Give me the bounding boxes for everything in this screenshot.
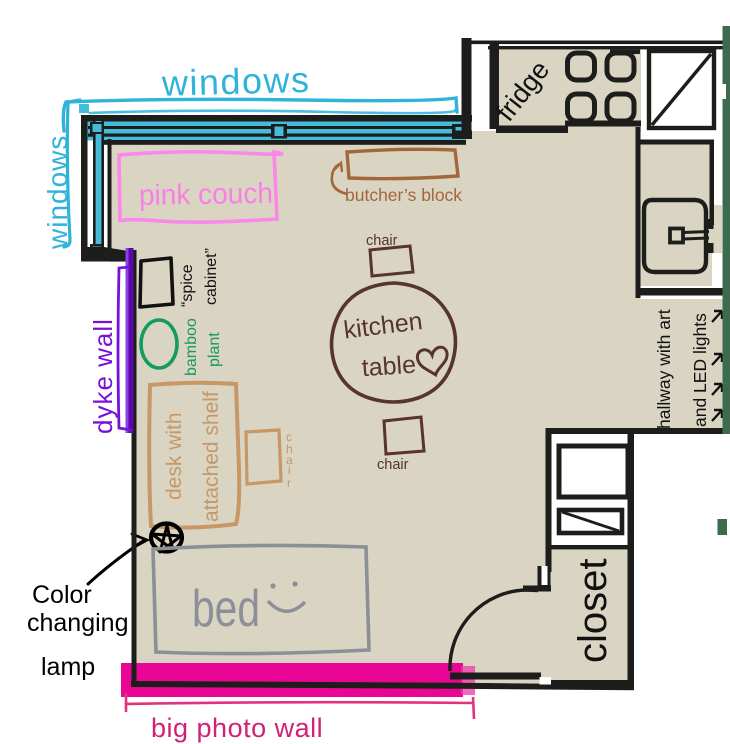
svg-text:changing: changing	[27, 609, 128, 637]
svg-text:Color: Color	[32, 581, 92, 609]
svg-text:attached shelf: attached shelf	[200, 391, 223, 522]
svg-text:pink couch: pink couch	[139, 178, 274, 212]
svg-text:bed: bed	[192, 580, 260, 638]
svg-text:chair: chair	[366, 233, 398, 249]
svg-text:i: i	[288, 463, 291, 477]
svg-text:and LED lights: and LED lights	[690, 313, 710, 427]
svg-text:bamboo: bamboo	[183, 318, 200, 376]
svg-text:closet: closet	[571, 559, 615, 664]
svg-text:r: r	[287, 476, 291, 490]
svg-text:big photo wall: big photo wall	[151, 713, 323, 743]
svg-text:windows: windows	[160, 59, 311, 104]
svg-text:lamp: lamp	[41, 653, 95, 681]
svg-text:table: table	[361, 351, 417, 383]
svg-text:“spice: “spice	[179, 264, 196, 307]
svg-text:dyke wall: dyke wall	[88, 318, 118, 434]
svg-text:desk with: desk with	[163, 412, 186, 500]
svg-text:cabinet”: cabinet”	[203, 248, 220, 305]
svg-text:butcher’s block: butcher’s block	[345, 185, 462, 205]
svg-text:plant: plant	[206, 332, 223, 367]
svg-text:hallway with art: hallway with art	[654, 309, 674, 429]
svg-text:chair: chair	[377, 457, 409, 473]
